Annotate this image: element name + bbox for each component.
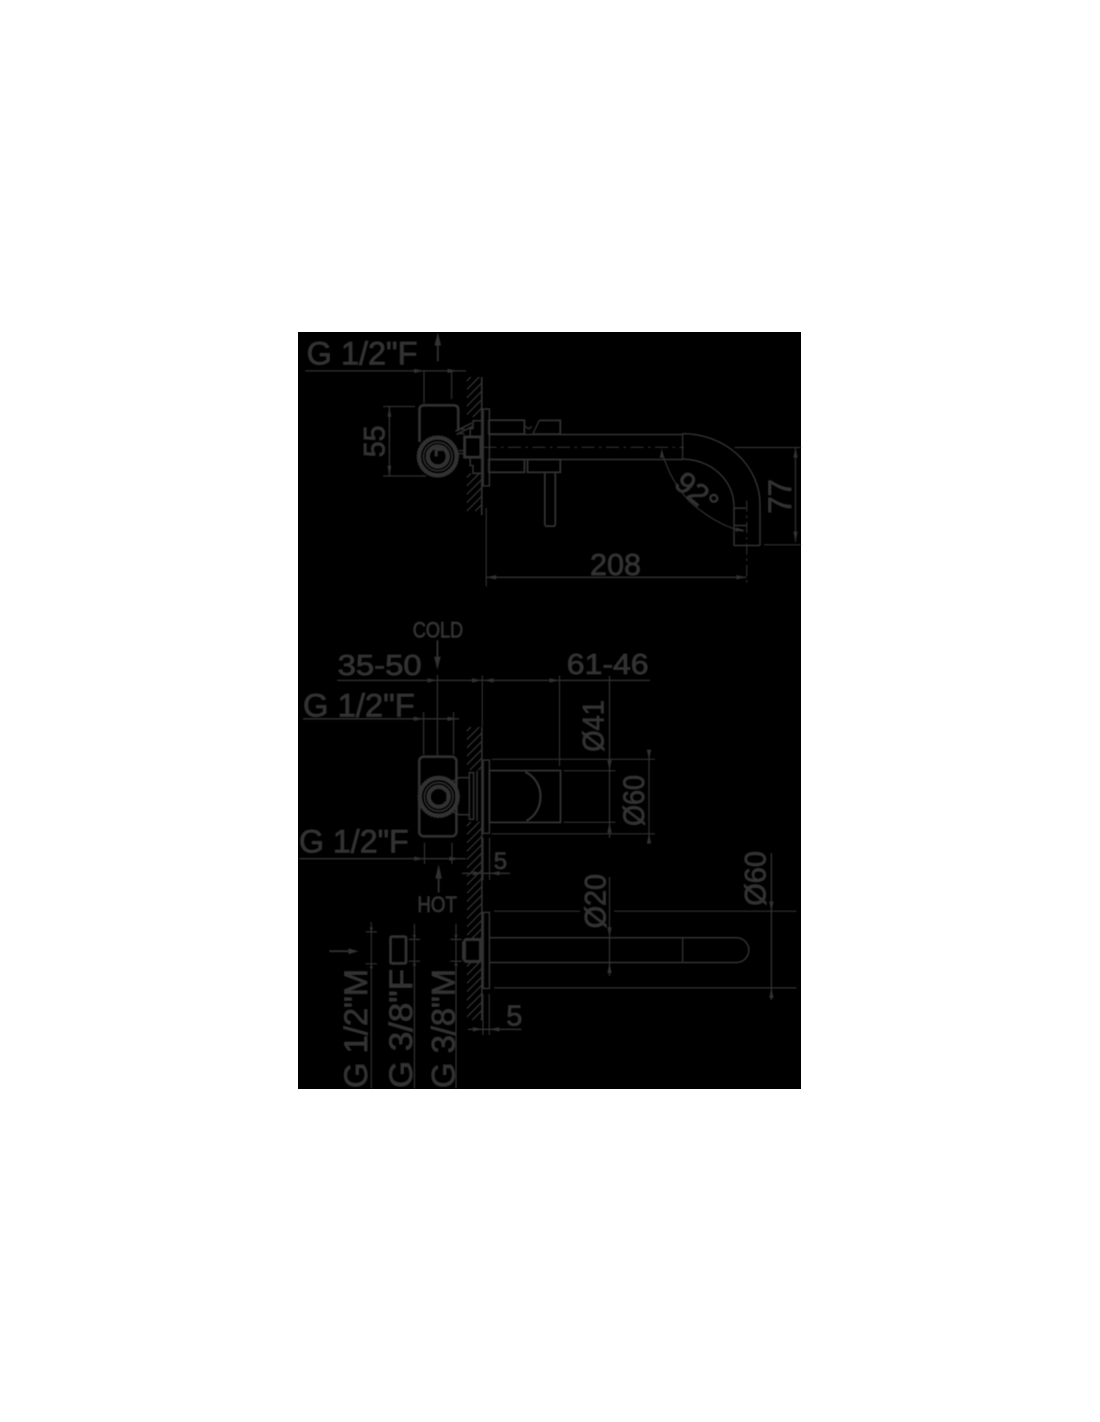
svg-text:G 3/8"F: G 3/8"F — [383, 969, 419, 1088]
svg-text:HOT: HOT — [417, 892, 457, 917]
svg-text:Ø60: Ø60 — [618, 775, 651, 826]
svg-text:G 1/2"M: G 1/2"M — [338, 969, 374, 1088]
svg-text:5: 5 — [494, 848, 507, 875]
svg-text:Ø60: Ø60 — [740, 851, 773, 906]
svg-text:Ø41: Ø41 — [578, 700, 611, 752]
svg-text:61-46: 61-46 — [567, 649, 649, 681]
svg-text:G 1/2"F: G 1/2"F — [303, 687, 415, 723]
svg-text:G 3/8"M: G 3/8"M — [425, 969, 461, 1088]
svg-text:55: 55 — [359, 426, 392, 458]
svg-text:Ø20: Ø20 — [580, 874, 613, 929]
svg-text:G 1/2"F: G 1/2"F — [299, 824, 409, 860]
svg-text:5: 5 — [506, 1001, 522, 1033]
svg-text:COLD: COLD — [413, 617, 464, 642]
svg-text:208: 208 — [590, 547, 641, 582]
svg-text:77: 77 — [762, 479, 798, 514]
svg-text:35-50: 35-50 — [338, 650, 422, 682]
svg-text:G 1/2"F: G 1/2"F — [307, 336, 418, 372]
